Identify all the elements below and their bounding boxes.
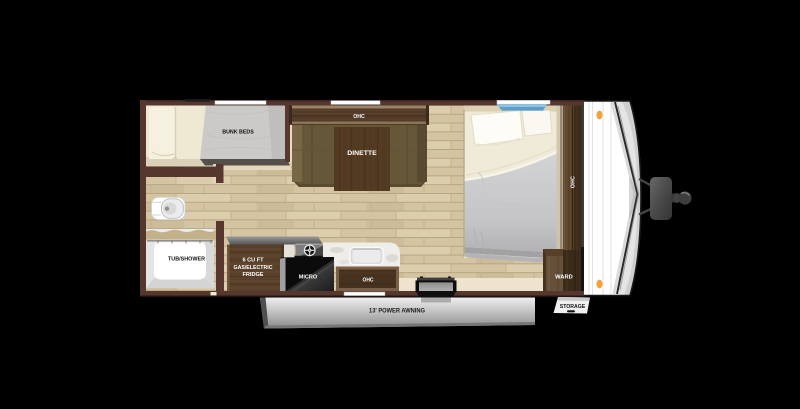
svg-text:OHC: OHC: [363, 278, 374, 284]
svg-text:MICRO: MICRO: [299, 274, 318, 280]
svg-text:WARD: WARD: [555, 275, 573, 281]
svg-text:13' POWER AWNING: 13' POWER AWNING: [369, 308, 425, 314]
svg-text:FRIDGE: FRIDGE: [243, 272, 264, 278]
svg-text:DINETTE: DINETTE: [347, 151, 377, 157]
svg-text:STORAGE: STORAGE: [560, 304, 586, 310]
svg-text:BUNK BEDS: BUNK BEDS: [222, 130, 254, 136]
svg-text:TUB/SHOWER: TUB/SHOWER: [168, 257, 206, 263]
svg-text:GAS/ELECTRIC: GAS/ELECTRIC: [234, 265, 273, 271]
svg-text:6 CU FT: 6 CU FT: [243, 258, 265, 264]
svg-text:OHC: OHC: [571, 176, 577, 188]
svg-text:OHC: OHC: [353, 114, 365, 120]
